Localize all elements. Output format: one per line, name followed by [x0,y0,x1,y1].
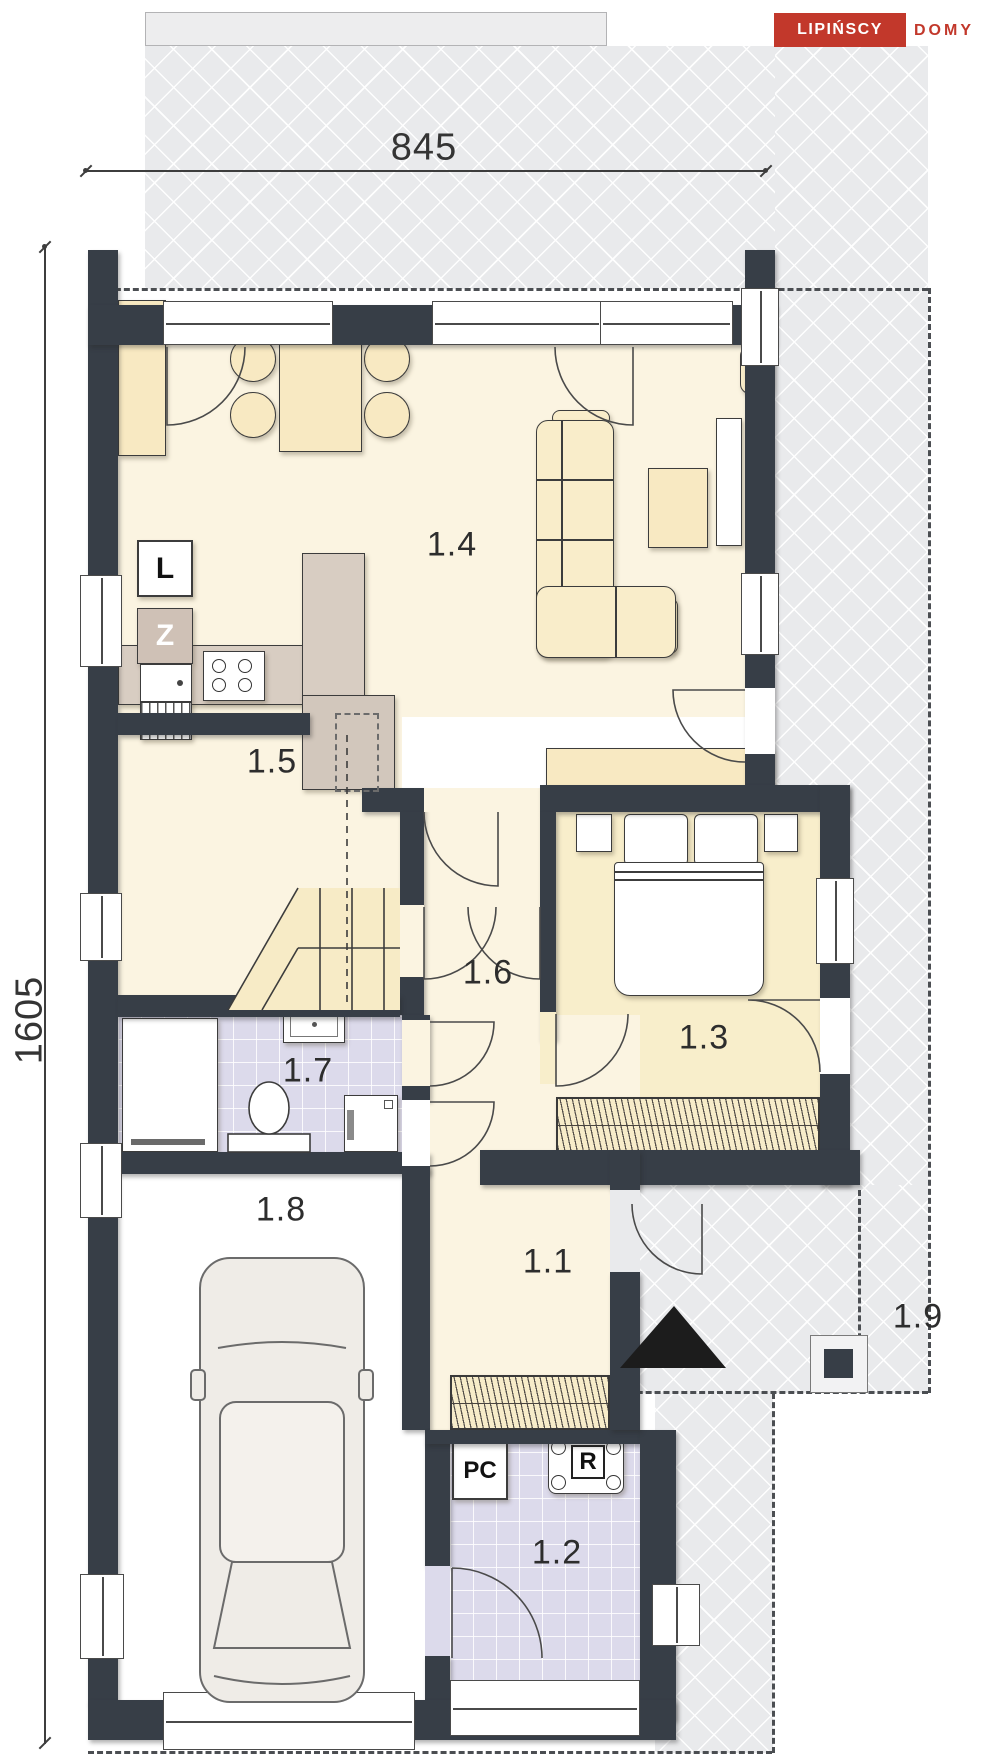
room-label-1-8: 1.8 [256,1191,306,1230]
wall-bedroom-top [540,785,850,812]
wall-stairs-bathroom [118,995,400,1017]
door-gap-bathroom [402,1020,430,1086]
cooktop [203,651,265,701]
brand-logo-suffix: DOMY [914,22,974,40]
floor-plan: 845 1605 LIPIŃSCY DOMY L Z [0,0,995,1761]
bed-pillow [694,814,758,866]
dining-chair [230,392,276,438]
window-bedroom-right [816,878,854,964]
brand-logo: LIPIŃSCY [774,13,906,47]
sofa-chaise [536,586,676,658]
manifold-label: R [579,1448,596,1476]
porch-dash-bottom [610,1391,928,1394]
room-label-1-6: 1.6 [463,954,513,993]
room-label-1-7: 1.7 [283,1052,333,1091]
wall-kitchen-hall [118,713,310,735]
wall-utility-right [640,1430,676,1720]
coffee-table [648,468,708,548]
fridge-label: L [156,552,174,586]
wall-bedroom-right [820,785,850,1185]
wardrobe-bedroom [556,1097,820,1152]
room-label-1-5: 1.5 [247,743,297,782]
wardrobe-hall [450,1375,610,1430]
floor-hallway [425,1015,640,1433]
window-utility-bottom [450,1680,640,1736]
door-gap-utility [425,1566,450,1656]
central-heating-boiler: PC [452,1442,508,1500]
shower [122,1018,218,1152]
entrance-porch-paving [610,1185,928,1393]
room-label-1-2: 1.2 [532,1534,582,1573]
dim-dot [42,244,47,249]
room-label-1-9: 1.9 [893,1298,943,1337]
window-top-2 [432,301,602,345]
dimension-height-label: 1605 [9,976,52,1065]
terrace-top-paving [145,46,775,289]
wall-bedroom-left [540,812,556,1040]
fridge: L [137,540,193,597]
door-gap-terrace-bedroom [820,998,850,1074]
window-left-2 [80,893,122,961]
dim-dot [763,168,768,173]
window-top-3 [600,301,733,345]
sideboard [546,748,774,788]
window-left-1 [80,575,122,667]
bed-pillow [624,814,688,866]
window-right-1 [741,288,779,366]
door-gap-living-corridor [424,788,500,812]
room-label-1-4: 1.4 [427,526,477,565]
door-gap-garage [402,1100,430,1166]
floor-garage [118,1155,430,1703]
door-gap-entrance [610,1190,640,1272]
wall-garage-east-b [402,1166,430,1430]
dim-dot [83,168,88,173]
roof-outline-dash-right [928,288,931,1393]
heating-manifold: R [548,1436,624,1494]
door-gap-stairs [400,905,424,977]
nightstand [764,814,798,852]
freezer: Z [137,608,193,664]
wall-hall-utility [425,1430,640,1444]
roof-outline-dash-top [88,288,928,291]
garage-door [163,1692,415,1750]
window-utility-right [652,1584,700,1646]
washing-machine [344,1095,398,1152]
dining-chair [364,392,410,438]
door-gap-bedroom [540,1012,556,1084]
dimension-width-label: 845 [391,127,457,170]
manifold-box: R [571,1445,605,1479]
wall-hall-east-b [610,1272,640,1430]
porch-column [810,1335,868,1393]
wall-garage-east-c [425,1430,450,1566]
boiler-label: PC [463,1457,496,1485]
window-top-1 [163,301,333,345]
door-gap-terrace-living [745,688,775,754]
nightstand [576,814,612,852]
wall-hall-east-a [610,1150,640,1190]
dimension-line-top [85,170,767,172]
window-left-4 [80,1574,124,1659]
roof-edge-bar [145,12,607,46]
wall-bedroom-bottom [480,1150,860,1185]
freezer-label: Z [156,619,174,653]
room-label-1-1: 1.1 [523,1243,573,1282]
wall-exterior-left [88,250,118,1705]
tv-bench [716,418,742,546]
window-left-3 [80,1143,122,1218]
brand-logo-text: LIPIŃSCY [797,21,883,39]
driveway-dash-right [772,1393,775,1753]
stairs-opening-dash [335,713,379,792]
kitchen-peninsula [302,553,365,699]
window-right-2 [741,573,779,655]
wall-bathroom-garage [118,1152,430,1174]
bed [614,862,764,996]
plot-dash-bottom [88,1751,772,1754]
room-label-1-3: 1.3 [679,1019,729,1058]
kitchen-sink [140,664,192,702]
